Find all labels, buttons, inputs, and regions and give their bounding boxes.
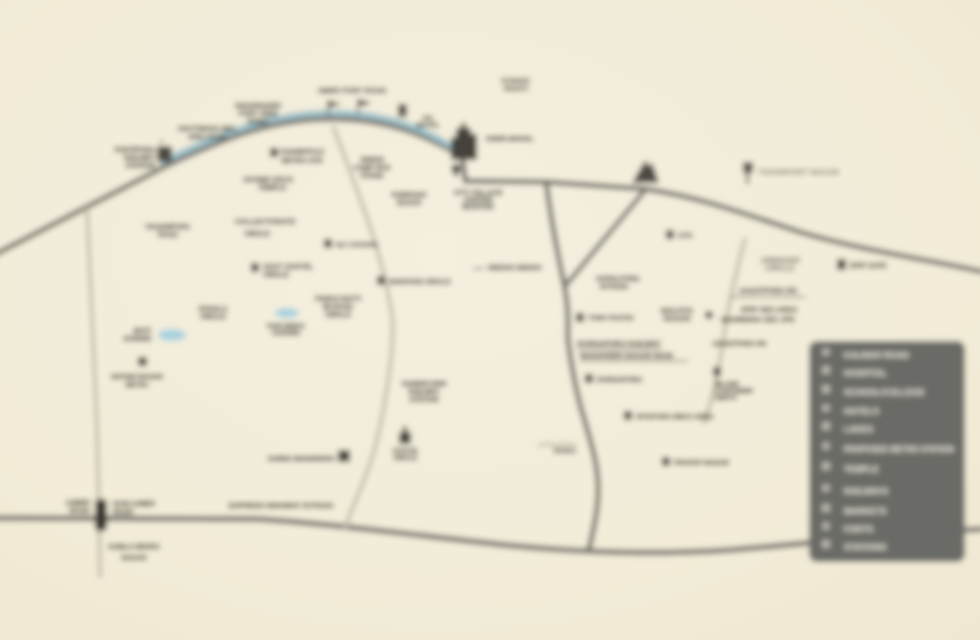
svg-text:POINT: POINT — [247, 119, 269, 126]
svg-text:ROAD: ROAD — [158, 232, 179, 239]
svg-text:KHATIPURA: KHATIPURA — [114, 147, 155, 154]
svg-text:HAWA MAHAL: HAWA MAHAL — [486, 136, 535, 143]
svg-text:HASANPURA: HASANPURA — [146, 224, 191, 231]
svg-text:PRATAP NAGAR: PRATAP NAGAR — [674, 460, 729, 467]
svg-text:GARDEN: GARDEN — [272, 330, 300, 337]
svg-text:NAGAR: NAGAR — [663, 314, 691, 323]
svg-text:EXPRESS HIGHWAY BYPASS: EXPRESS HIGHWAY BYPASS — [229, 501, 334, 510]
svg-text:DEPOT: DEPOT — [715, 395, 737, 402]
svg-text:SCHOOL/COLLEGE: SCHOOL/COLLEGE — [844, 387, 925, 397]
svg-text:RIDDHI SIDDHI: RIDDHI SIDDHI — [488, 263, 541, 272]
svg-text:MAHINDRA SEZ JPR: MAHINDRA SEZ JPR — [721, 315, 795, 324]
svg-text:GOPALPURA: GOPALPURA — [596, 276, 640, 283]
svg-text:CIRCLE: CIRCLE — [765, 264, 795, 273]
svg-text:METRO: METRO — [125, 382, 148, 389]
svg-text:CIRCLE: CIRCLE — [325, 312, 351, 319]
svg-text:MAHAVEER NAGAR MAIN: MAHAVEER NAGAR MAIN — [580, 351, 673, 360]
svg-text:STATUE: STATUE — [392, 448, 418, 455]
svg-text:SAWAI MANSINGH: SAWAI MANSINGH — [267, 454, 334, 463]
svg-text:RAM NIWAS: RAM NIWAS — [267, 323, 306, 330]
svg-text:SODALA: SODALA — [198, 306, 228, 313]
svg-text:FORT VIEW: FORT VIEW — [239, 111, 278, 118]
svg-text:JAGATPURA RD: JAGATPURA RD — [712, 341, 767, 348]
svg-text:JAL: JAL — [422, 115, 434, 122]
svg-text:RAILWAYS: RAILWAYS — [844, 486, 888, 496]
svg-text:RAMGANJ: RAMGANJ — [391, 192, 426, 199]
svg-text:STATIONS: STATIONS — [844, 542, 886, 552]
svg-text:AMER FORT ROAD: AMER FORT ROAD — [318, 86, 387, 95]
svg-text:GANDHI NGR: GANDHI NGR — [401, 381, 446, 388]
svg-text:MARKETS: MARKETS — [844, 506, 887, 516]
svg-text:SHYAM NAGAR: SHYAM NAGAR — [111, 374, 163, 381]
svg-text:CIRCLE: CIRCLE — [244, 231, 270, 238]
svg-text:FORTS: FORTS — [844, 524, 873, 534]
svg-text:LAKES: LAKES — [844, 424, 873, 434]
svg-text:NAGAR: NAGAR — [121, 555, 147, 562]
svg-text:GOVIND DEVJI: GOVIND DEVJI — [243, 177, 293, 184]
svg-text:STATION: STATION — [125, 163, 155, 170]
svg-text:CONTAINER: CONTAINER — [715, 388, 753, 395]
svg-text:SINDHI: SINDHI — [360, 157, 384, 164]
svg-text:JHOTWARA IND.: JHOTWARA IND. — [177, 124, 237, 133]
svg-text:HOTELS: HOTELS — [844, 406, 879, 416]
svg-text:TRANSPORT NAGAR: TRANSPORT NAGAR — [758, 168, 840, 177]
svg-text:ROAD: ROAD — [69, 508, 90, 515]
svg-text:GOVT HOSTEL: GOVT HOSTEL — [263, 264, 314, 271]
svg-text:BAZAR: BAZAR — [397, 200, 422, 207]
svg-text:EPIP SEZ AREA: EPIP SEZ AREA — [741, 305, 798, 314]
svg-text:HOSPITAL: HOSPITAL — [844, 368, 887, 378]
svg-text:INLAND: INLAND — [715, 381, 740, 388]
svg-text:TEMPLE: TEMPLE — [844, 464, 879, 474]
svg-text:STATION: STATION — [409, 397, 439, 404]
svg-text:AREA ROAD: AREA ROAD — [187, 134, 226, 141]
svg-text:DURGAPURA RAILWAY: DURGAPURA RAILWAY — [577, 339, 661, 348]
svg-text:KALWAR ROAD: KALWAR ROAD — [844, 350, 909, 360]
svg-text:METRO STN: METRO STN — [281, 158, 322, 165]
svg-text:BYPASS: BYPASS — [600, 284, 629, 291]
svg-text:MOTI: MOTI — [134, 328, 152, 335]
svg-text:ROAD: ROAD — [113, 509, 134, 516]
svg-text:CIRCLE: CIRCLE — [263, 272, 289, 279]
svg-text:MI ROAD: MI ROAD — [323, 304, 353, 311]
svg-text:RLY STATION: RLY STATION — [336, 242, 378, 249]
svg-text:EPIP GATE: EPIP GATE — [850, 263, 887, 270]
svg-text:CAMP BUS: CAMP BUS — [353, 165, 391, 172]
svg-text:VATIKA: VATIKA — [553, 448, 577, 455]
svg-text:MANTAR: MANTAR — [462, 202, 495, 211]
svg-text:TEMPLE: TEMPLE — [258, 185, 287, 192]
svg-text:DUNGRI: DUNGRI — [123, 336, 151, 343]
svg-text:RAILWAY: RAILWAY — [408, 389, 440, 396]
svg-text:TONK PHATAK: TONK PHATAK — [588, 315, 635, 322]
svg-text:COLLECTORATE: COLLECTORATE — [235, 217, 296, 226]
svg-text:DCM AJMER: DCM AJMER — [113, 501, 155, 508]
svg-text:CIRCLE: CIRCLE — [200, 314, 226, 321]
svg-text:MAHAL: MAHAL — [416, 122, 439, 129]
svg-text:OTS: OTS — [678, 233, 693, 240]
svg-text:PANCH BATTI: PANCH BATTI — [315, 296, 361, 303]
svg-text:PROPOSED METRO STATION: PROPOSED METRO STATION — [844, 445, 954, 454]
svg-text:JAGATPURA RD: JAGATPURA RD — [739, 286, 798, 295]
svg-text:KAMLA NEHRU: KAMLA NEHRU — [108, 544, 160, 551]
svg-text:NARAYAN CIRCLE: NARAYAN CIRCLE — [389, 279, 451, 286]
svg-text:SITAPURA RIICO AREA: SITAPURA RIICO AREA — [636, 414, 714, 421]
svg-text:DURGAPURA: DURGAPURA — [597, 377, 643, 384]
svg-text:CIRCLE: CIRCLE — [393, 455, 418, 462]
svg-text:NAHARGARH: NAHARGARH — [235, 103, 281, 110]
svg-text:STAND: STAND — [360, 173, 384, 180]
svg-text:CHANDPOLE: CHANDPOLE — [280, 149, 325, 156]
svg-text:GHATI: GHATI — [504, 84, 529, 93]
svg-text:RAILWAY: RAILWAY — [124, 155, 156, 162]
svg-text:AJMER: AJMER — [65, 500, 90, 507]
